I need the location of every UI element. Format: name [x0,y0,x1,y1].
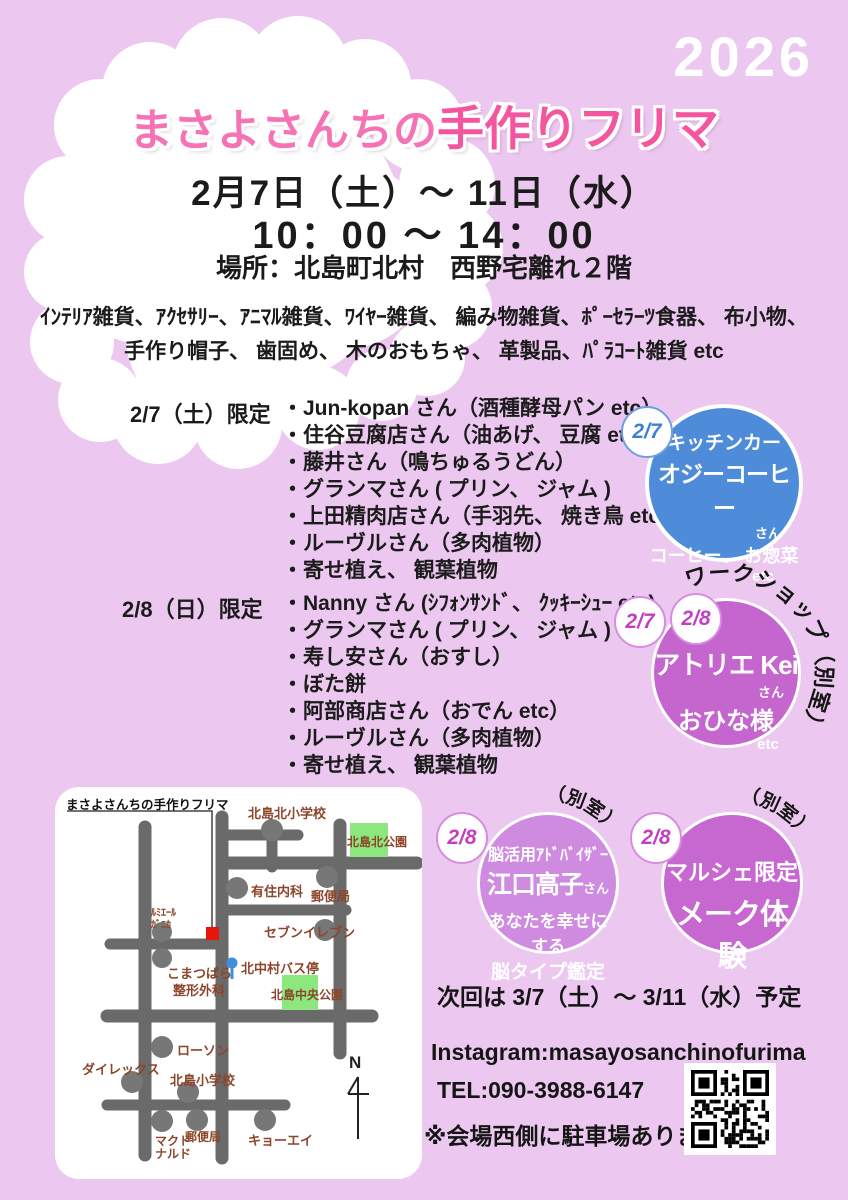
date-badge-0208: 2/8 [670,593,722,645]
goods-line1: ｲﾝﾃﾘｱ雑貨、ｱｸｾｻﾘｰ、ｱﾆﾏﾙ雑貨、ﾜｲﾔｰ雑貨、 編み物雑貨、ﾎﾟｰｾ… [0,301,848,331]
goods-line2: 手作り帽子、 歯固め、 木のおもちゃ、 革製品、ﾊﾟﾗｺｰﾄ雑貨 etc [0,335,848,365]
section-label-0207: 2/7（土）限定 [130,397,271,429]
bubble-detail: コーヒー、 お惣菜 [649,542,799,568]
map-label-clinic: 有住内科 [251,881,303,900]
compass-arrow [348,1077,369,1139]
map-label-park-north: 北島北公園 [347,833,407,850]
map-label-bus-stop: 北中村バス停 [241,958,319,977]
vendor-name: アトリエ Kei [654,645,798,682]
date-badge-0207: 2/7 [621,406,673,458]
parking-note: ※会場西側に駐車場あります [424,1117,722,1151]
map-label-lumiere-2: ｶﾞﾆｶ [151,916,171,931]
bubble-detail: あなたを幸せにする [480,907,616,957]
map-label-park-center: 北島中央公園 [271,986,343,1003]
phone-line: TEL:090-3988-6147 [437,1077,644,1104]
name-suffix: さん [654,682,784,701]
map-label-dailex: ダイレックス [82,1059,160,1078]
date-badge-0208: 2/8 [436,812,488,864]
qr-code [684,1063,776,1155]
bubble-subtitle: マルシェ限定 [664,855,800,887]
map-label-school-small: 北島小学校 [170,1070,235,1089]
bubble-subtitle: 脳活用ｱﾄﾞﾊﾞｲｻﾞｰ [480,841,616,865]
map-label-lawson: ローソン [177,1040,229,1059]
etc-label: etc [738,736,798,753]
vendor-name: オジーコーヒー [649,455,799,523]
map-label-post-north: 郵便局 [311,886,350,905]
map-label-school-north: 北島北小学校 [248,803,326,822]
bubble-detail2: 脳タイプ鑑定 [480,957,616,984]
map-label-kyoei: キョーエイ [248,1130,313,1149]
date-badge-0208: 2/8 [630,812,682,864]
map-label-post-south: 郵便局 [185,1128,221,1145]
section-label-0208: 2/8（日）限定 [122,592,263,624]
access-map: まさよさんちの手作りフリマ 北島北小学校 北島北公園 有住内科 郵便局 ﾙﾐｴｰ… [55,787,422,1179]
venue-marker [206,927,219,940]
name-suffix: さん [649,523,781,542]
vendor-name: メーク体験 [664,891,800,975]
compass-north-label: N [349,1053,361,1073]
name-suffix: さん [583,881,609,896]
map-title: まさよさんちの手作りフリマ [66,794,229,813]
instagram-line: Instagram:masayosanchinofurima [431,1039,806,1066]
page-title: まさよさんちの手作りフリマ [129,90,719,159]
makeup-bubble: マルシェ限定 メーク体験 [661,812,803,954]
map-roads [107,817,417,1158]
date-badge-0207: 2/7 [614,596,666,648]
map-label-mcdonalds-2: ナルド [155,1145,191,1162]
year-label: 2026 [673,24,814,89]
list-item: ・寄せ植え、 観葉植物 [282,752,722,779]
brain-reading-bubble: 脳活用ｱﾄﾞﾊﾞｲｻﾞｰ 江口高子さん あなたを幸せにする 脳タイプ鑑定 [477,812,619,954]
event-place: 場所：北島町北村 西野宅離れ２階 [0,248,848,285]
bubble-detail: おひな様 [654,701,798,736]
map-label-seven-eleven: セブンイレブン [264,922,355,941]
map-label-komatsubara-2: 整形外科 [173,980,225,999]
vendor-name: 江口高子 [487,871,583,899]
title-part1: まさよさんちの [129,106,437,155]
title-part2: 手作りフリマ [437,102,719,155]
qr-pattern [691,1070,769,1148]
flyer-page: 2026 まさよさんちの手作りフリマ 2月7日（土）～ 11日（水） 10：00… [0,0,848,1200]
etc-label: etc [727,568,799,585]
